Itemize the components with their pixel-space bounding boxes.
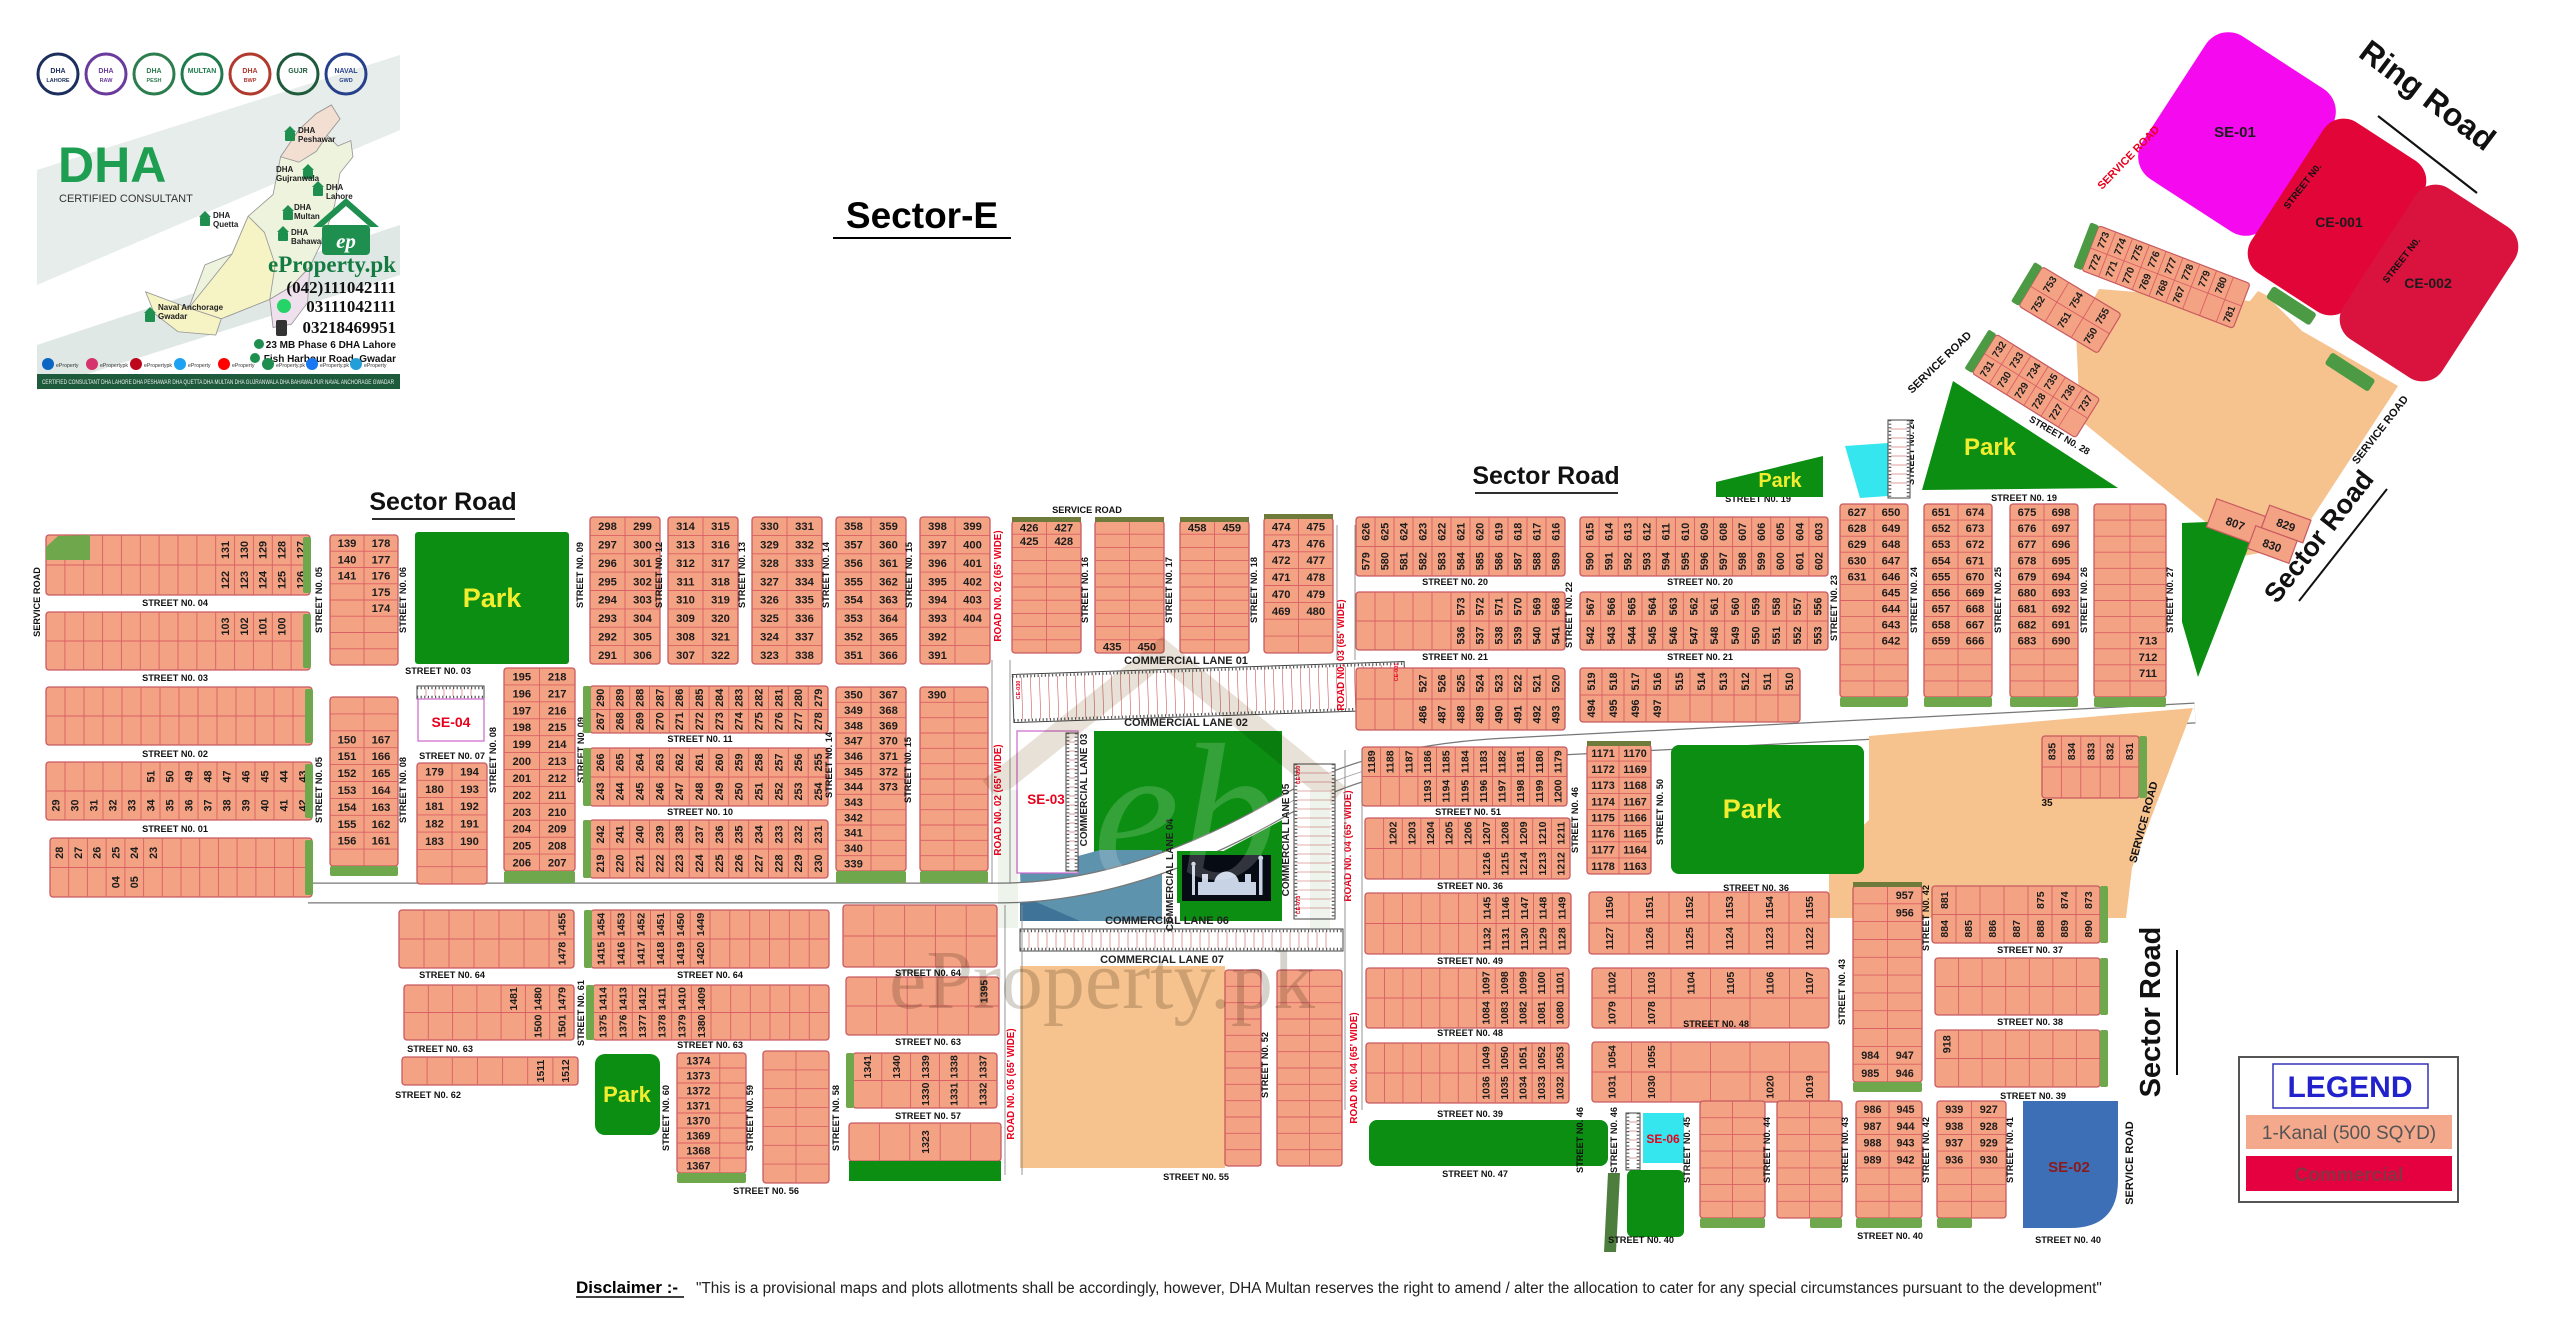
svg-text:224: 224	[694, 854, 706, 872]
svg-text:STREET N0. 58: STREET N0. 58	[831, 1085, 841, 1151]
svg-text:(042)111042111: (042)111042111	[286, 278, 396, 297]
svg-text:493: 493	[1550, 705, 1562, 723]
svg-text:225: 225	[714, 854, 726, 872]
svg-text:603: 603	[1813, 523, 1825, 541]
svg-text:834: 834	[2066, 743, 2078, 761]
svg-text:478: 478	[1306, 572, 1325, 584]
svg-text:190: 190	[460, 836, 479, 848]
svg-text:SE-06: SE-06	[1646, 1132, 1680, 1146]
svg-text:1183: 1183	[1478, 750, 1490, 773]
svg-text:475: 475	[1306, 522, 1325, 534]
svg-text:524: 524	[1474, 674, 1486, 692]
svg-text:942: 942	[1896, 1154, 1914, 1166]
svg-text:STREET N0. 03: STREET N0. 03	[142, 673, 208, 683]
svg-text:1203: 1203	[1406, 821, 1418, 845]
svg-text:130: 130	[239, 541, 251, 559]
svg-text:261: 261	[694, 753, 706, 771]
svg-text:180: 180	[425, 784, 444, 796]
svg-text:835: 835	[2047, 743, 2059, 761]
svg-text:928: 928	[1980, 1121, 1998, 1133]
svg-text:236: 236	[714, 825, 726, 843]
svg-text:STREET N0. 56: STREET N0. 56	[733, 1186, 799, 1196]
svg-text:1378: 1378	[657, 1014, 669, 1038]
svg-text:229: 229	[793, 854, 805, 872]
svg-text:200: 200	[512, 756, 531, 768]
svg-text:245: 245	[635, 782, 647, 800]
svg-text:1170: 1170	[1623, 748, 1646, 760]
svg-text:590: 590	[1584, 552, 1596, 570]
svg-text:ROAD N0. 05 (65' WIDE): ROAD N0. 05 (65' WIDE)	[1006, 1028, 1017, 1139]
svg-text:1166: 1166	[1623, 813, 1646, 825]
svg-text:STREET N0. 13: STREET N0. 13	[737, 542, 747, 608]
svg-text:Quetta: Quetta	[213, 220, 239, 229]
svg-text:STREET N0. 16: STREET N0. 16	[1080, 557, 1090, 623]
svg-text:201: 201	[512, 773, 531, 785]
svg-text:938: 938	[1945, 1121, 1963, 1133]
svg-text:STREET N0. 40: STREET N0. 40	[1857, 1231, 1923, 1241]
svg-text:STREET N0. 02: STREET N0. 02	[142, 749, 208, 759]
svg-text:306: 306	[633, 650, 652, 662]
svg-text:612: 612	[1642, 523, 1654, 541]
svg-text:1172: 1172	[1591, 764, 1614, 776]
svg-text:888: 888	[2035, 920, 2047, 938]
svg-text:1145: 1145	[1482, 897, 1494, 920]
svg-text:CE-002: CE-002	[2404, 275, 2452, 291]
svg-text:257: 257	[773, 753, 785, 771]
svg-text:DHA: DHA	[98, 68, 113, 75]
svg-text:1208: 1208	[1500, 821, 1512, 845]
svg-text:1479: 1479	[557, 987, 569, 1011]
svg-text:526: 526	[1436, 674, 1448, 692]
svg-text:537: 537	[1474, 626, 1486, 644]
svg-text:326: 326	[760, 595, 779, 607]
svg-text:231: 231	[813, 825, 825, 843]
svg-text:176: 176	[372, 571, 391, 583]
svg-text:DHA: DHA	[326, 183, 344, 192]
svg-text:03111042111: 03111042111	[306, 297, 396, 316]
svg-text:259: 259	[734, 753, 746, 771]
svg-text:STREET N0. 09: STREET N0. 09	[575, 542, 585, 608]
svg-text:1213: 1213	[1537, 852, 1549, 876]
svg-text:139: 139	[338, 538, 357, 550]
svg-text:1034: 1034	[1518, 1076, 1530, 1100]
svg-text:1186: 1186	[1422, 750, 1434, 773]
svg-text:565: 565	[1627, 597, 1639, 615]
svg-text:599: 599	[1756, 552, 1768, 570]
svg-text:342: 342	[844, 812, 863, 824]
svg-text:400: 400	[963, 540, 982, 552]
svg-text:1130: 1130	[1519, 927, 1531, 950]
svg-text:Sector Road: Sector Road	[1472, 462, 1619, 490]
svg-text:122: 122	[220, 571, 232, 589]
svg-text:35: 35	[164, 799, 176, 811]
svg-text:1175: 1175	[1591, 813, 1614, 825]
svg-text:STREET N0. 39: STREET N0. 39	[1437, 1109, 1503, 1119]
svg-text:289: 289	[615, 689, 627, 707]
svg-text:945: 945	[1896, 1104, 1914, 1116]
svg-text:270: 270	[654, 712, 666, 730]
svg-text:302: 302	[633, 576, 652, 588]
svg-text:328: 328	[760, 558, 779, 570]
svg-text:SERVICE ROAD: SERVICE ROAD	[32, 567, 42, 637]
svg-text:STREET N0. 55: STREET N0. 55	[1163, 1172, 1229, 1182]
svg-text:30: 30	[69, 799, 81, 811]
svg-text:258: 258	[754, 753, 766, 771]
svg-text:681: 681	[2018, 604, 2037, 616]
svg-text:COMMERCIAL LANE 03: COMMERCIAL LANE 03	[1079, 733, 1090, 846]
svg-text:885: 885	[1963, 920, 1975, 938]
svg-text:156: 156	[338, 836, 357, 848]
svg-text:296: 296	[598, 558, 617, 570]
svg-text:1168: 1168	[1623, 780, 1646, 792]
svg-text:339: 339	[844, 858, 863, 870]
svg-text:STREET N0. 45: STREET N0. 45	[1682, 1117, 1692, 1183]
svg-text:358: 358	[844, 521, 863, 533]
svg-text:205: 205	[512, 841, 531, 853]
svg-text:696: 696	[2052, 539, 2071, 551]
svg-text:1212: 1212	[1556, 852, 1568, 876]
svg-text:STREET N0. 47: STREET N0. 47	[1442, 1169, 1508, 1179]
svg-text:571: 571	[1493, 597, 1505, 615]
svg-text:03218469951: 03218469951	[303, 318, 397, 337]
svg-text:STREET N0. 08: STREET N0. 08	[398, 757, 408, 823]
svg-text:1187: 1187	[1403, 750, 1415, 773]
svg-text:Park: Park	[1758, 470, 1802, 492]
svg-text:1081: 1081	[1536, 1001, 1548, 1025]
svg-text:320: 320	[711, 613, 730, 625]
svg-text:151: 151	[338, 751, 357, 763]
svg-text:STREET N0. 64: STREET N0. 64	[419, 970, 486, 980]
svg-text:1323: 1323	[920, 1130, 932, 1154]
svg-text:227: 227	[754, 854, 766, 872]
svg-text:711: 711	[2139, 668, 2157, 680]
svg-text:1375: 1375	[598, 1014, 610, 1038]
svg-text:35: 35	[2041, 798, 2053, 809]
svg-text:STREET N0. 11: STREET N0. 11	[667, 734, 732, 744]
svg-text:DHA: DHA	[213, 211, 231, 220]
svg-text:STREET N0. 57: STREET N0. 57	[895, 1111, 961, 1121]
svg-text:204: 204	[512, 824, 531, 836]
svg-text:1199: 1199	[1534, 780, 1546, 803]
svg-text:680: 680	[2018, 588, 2037, 600]
svg-text:249: 249	[714, 782, 726, 800]
svg-text:Naval Anchorage: Naval Anchorage	[158, 303, 224, 312]
svg-text:STREET N0. 48: STREET N0. 48	[1683, 1019, 1749, 1029]
svg-text:357: 357	[844, 540, 863, 552]
svg-text:334: 334	[795, 576, 814, 588]
svg-text:23 MB Phase 6 DHA Lahore: 23 MB Phase 6 DHA Lahore	[266, 340, 397, 351]
svg-text:435: 435	[1103, 641, 1122, 653]
svg-text:150: 150	[338, 734, 357, 746]
svg-text:487: 487	[1436, 705, 1448, 723]
svg-text:161: 161	[372, 836, 391, 848]
svg-text:207: 207	[548, 858, 567, 870]
svg-text:193: 193	[460, 784, 479, 796]
svg-text:881: 881	[1939, 891, 1951, 909]
svg-text:STREET N0. 63: STREET N0. 63	[407, 1044, 473, 1054]
svg-text:495: 495	[1608, 699, 1620, 717]
svg-text:697: 697	[2052, 523, 2071, 535]
svg-text:548: 548	[1709, 626, 1721, 644]
svg-text:331: 331	[795, 521, 814, 533]
svg-text:STREET N0. 49: STREET N0. 49	[1437, 956, 1503, 966]
svg-text:873: 873	[2083, 891, 2095, 909]
svg-text:CE-001: CE-001	[2315, 214, 2363, 230]
svg-text:349: 349	[844, 705, 863, 717]
svg-text:208: 208	[548, 841, 567, 853]
svg-text:1369: 1369	[686, 1130, 710, 1142]
svg-text:369: 369	[879, 720, 898, 732]
svg-text:163: 163	[372, 802, 391, 814]
svg-text:313: 313	[676, 540, 695, 552]
svg-text:579: 579	[1360, 552, 1372, 570]
svg-text:1054: 1054	[1607, 1045, 1619, 1069]
svg-text:316: 316	[711, 540, 730, 552]
svg-text:SE-01: SE-01	[2214, 124, 2256, 141]
svg-text:642: 642	[1882, 636, 1901, 648]
svg-text:1084: 1084	[1481, 1001, 1493, 1025]
svg-text:329: 329	[760, 540, 779, 552]
svg-text:643: 643	[1882, 620, 1901, 632]
svg-text:301: 301	[633, 558, 652, 570]
svg-text:470: 470	[1272, 589, 1291, 601]
svg-text:209: 209	[548, 824, 567, 836]
svg-text:24: 24	[129, 847, 141, 859]
svg-text:STREET N0. 07: STREET N0. 07	[419, 751, 485, 761]
svg-text:253: 253	[793, 782, 805, 800]
svg-text:536: 536	[1455, 626, 1467, 644]
svg-text:511: 511	[1762, 673, 1774, 690]
svg-text:STREET N0. 63: STREET N0. 63	[677, 1040, 743, 1050]
svg-text:183: 183	[425, 836, 444, 848]
svg-text:271: 271	[674, 712, 686, 730]
svg-text:Park: Park	[603, 1082, 651, 1107]
svg-text:27: 27	[73, 847, 85, 859]
svg-text:314: 314	[676, 521, 695, 533]
svg-text:198: 198	[512, 722, 531, 734]
svg-text:STREET N0. 64: STREET N0. 64	[677, 970, 744, 980]
svg-text:297: 297	[598, 540, 617, 552]
svg-text:DHA: DHA	[294, 203, 312, 212]
svg-text:182: 182	[425, 819, 444, 831]
svg-text:230: 230	[813, 854, 825, 872]
svg-text:181: 181	[425, 801, 444, 813]
svg-text:1198: 1198	[1515, 780, 1527, 803]
svg-text:1174: 1174	[1591, 796, 1614, 808]
svg-text:1337: 1337	[977, 1055, 989, 1079]
svg-text:1097: 1097	[1481, 971, 1493, 995]
svg-text:628: 628	[1848, 523, 1867, 535]
svg-text:1481: 1481	[508, 987, 520, 1011]
svg-text:223: 223	[674, 854, 686, 872]
svg-text:1176: 1176	[1591, 829, 1614, 841]
svg-text:619: 619	[1493, 523, 1505, 541]
svg-text:238: 238	[674, 825, 686, 843]
svg-text:327: 327	[760, 576, 779, 588]
svg-text:352: 352	[844, 632, 863, 644]
svg-text:1152: 1152	[1684, 896, 1696, 919]
svg-text:517: 517	[1630, 672, 1642, 690]
svg-text:242: 242	[595, 825, 607, 843]
svg-text:322: 322	[711, 650, 730, 662]
svg-text:STREET N0. 21: STREET N0. 21	[1667, 652, 1733, 662]
svg-text:365: 365	[879, 632, 898, 644]
svg-text:STREET N0. 44: STREET N0. 44	[1762, 1116, 1772, 1183]
svg-text:LAHORE: LAHORE	[46, 78, 70, 84]
svg-text:557: 557	[1792, 597, 1804, 615]
svg-text:154: 154	[338, 802, 357, 814]
svg-text:26: 26	[92, 847, 104, 859]
svg-text:1124: 1124	[1724, 927, 1736, 950]
svg-text:348: 348	[844, 720, 863, 732]
svg-text:712: 712	[2139, 652, 2158, 664]
svg-text:164: 164	[372, 785, 391, 797]
svg-text:646: 646	[1882, 571, 1901, 583]
svg-text:606: 606	[1756, 523, 1768, 541]
svg-text:DHA: DHA	[276, 165, 294, 174]
svg-text:162: 162	[372, 819, 391, 831]
svg-text:459: 459	[1222, 523, 1241, 535]
svg-text:STREET N0. 38: STREET N0. 38	[1997, 1017, 2063, 1027]
svg-text:STREET N0. 03: STREET N0. 03	[405, 666, 471, 676]
svg-text:346: 346	[844, 751, 863, 763]
svg-text:178: 178	[372, 538, 391, 550]
svg-text:325: 325	[760, 613, 779, 625]
svg-text:1126: 1126	[1644, 927, 1656, 950]
svg-text:DHA: DHA	[242, 68, 257, 75]
svg-text:305: 305	[633, 632, 652, 644]
svg-text:362: 362	[879, 576, 898, 588]
svg-text:1053: 1053	[1555, 1046, 1567, 1070]
svg-text:STREET N0. 63: STREET N0. 63	[895, 1037, 961, 1047]
svg-text:1099: 1099	[1518, 971, 1530, 995]
svg-text:309: 309	[676, 613, 695, 625]
svg-text:987: 987	[1863, 1121, 1881, 1133]
svg-text:292: 292	[598, 632, 617, 644]
svg-text:645: 645	[1882, 588, 1901, 600]
svg-text:351: 351	[844, 650, 863, 662]
svg-text:650: 650	[1882, 507, 1901, 519]
svg-text:282: 282	[754, 689, 766, 707]
svg-text:246: 246	[654, 782, 666, 800]
svg-text:479: 479	[1306, 589, 1325, 601]
svg-text:458: 458	[1188, 523, 1207, 535]
svg-text:1209: 1209	[1518, 821, 1530, 845]
svg-text:425: 425	[1020, 536, 1039, 548]
svg-text:616: 616	[1550, 523, 1562, 541]
svg-text:985: 985	[1861, 1068, 1879, 1080]
svg-text:601: 601	[1794, 552, 1806, 570]
svg-text:1368: 1368	[686, 1145, 710, 1157]
svg-text:668: 668	[1966, 604, 1985, 616]
svg-text:GUJR: GUJR	[288, 68, 307, 75]
svg-text:1154: 1154	[1764, 896, 1776, 919]
svg-text:943: 943	[1896, 1138, 1914, 1150]
svg-text:ePropertypk: ePropertypk	[144, 363, 172, 369]
svg-text:1189: 1189	[1366, 750, 1378, 773]
svg-text:492: 492	[1531, 705, 1543, 723]
svg-text:372: 372	[879, 766, 898, 778]
svg-text:476: 476	[1306, 538, 1325, 550]
svg-text:308: 308	[676, 632, 695, 644]
svg-text:266: 266	[595, 753, 607, 771]
svg-text:"This is a provisional maps an: "This is a provisional maps and plots al…	[696, 1280, 2102, 1297]
svg-text:602: 602	[1813, 552, 1825, 570]
svg-text:1052: 1052	[1536, 1046, 1548, 1070]
svg-text:395: 395	[928, 576, 947, 588]
svg-text:1200: 1200	[1553, 779, 1565, 803]
svg-text:600: 600	[1775, 552, 1787, 570]
svg-text:670: 670	[1966, 571, 1985, 583]
svg-text:233: 233	[773, 825, 785, 843]
svg-text:STREET N0. 24: STREET N0. 24	[1909, 566, 1919, 633]
svg-text:657: 657	[1932, 604, 1951, 616]
svg-text:655: 655	[1932, 571, 1951, 583]
svg-text:1128: 1128	[1556, 927, 1568, 950]
svg-text:1380: 1380	[696, 1014, 708, 1038]
svg-text:654: 654	[1932, 555, 1951, 567]
svg-text:1030: 1030	[1646, 1075, 1658, 1099]
svg-text:587: 587	[1512, 552, 1524, 570]
svg-text:STREET N0. 52: STREET N0. 52	[1260, 1032, 1270, 1098]
svg-text:1415: 1415	[596, 942, 608, 966]
svg-text:1149: 1149	[1556, 897, 1568, 920]
svg-text:221: 221	[635, 854, 647, 872]
svg-text:240: 240	[635, 825, 647, 843]
svg-text:550: 550	[1751, 626, 1763, 644]
svg-text:542: 542	[1585, 626, 1597, 644]
svg-text:1032: 1032	[1555, 1076, 1567, 1100]
svg-text:44: 44	[278, 770, 290, 782]
svg-text:SERVICE ROAD: SERVICE ROAD	[2124, 1121, 2136, 1205]
svg-text:1103: 1103	[1646, 971, 1658, 994]
svg-text:1020: 1020	[1765, 1075, 1777, 1099]
svg-text:390: 390	[928, 690, 947, 702]
svg-text:STREET N0. 12: STREET N0. 12	[654, 542, 664, 608]
svg-text:1167: 1167	[1623, 796, 1646, 808]
svg-text:STREET N0. 14: STREET N0. 14	[824, 731, 834, 798]
svg-text:543: 543	[1606, 626, 1618, 644]
svg-text:989: 989	[1863, 1154, 1881, 1166]
svg-text:218: 218	[548, 672, 567, 684]
svg-text:STREET N0. 39: STREET N0. 39	[2000, 1091, 2066, 1101]
svg-text:622: 622	[1436, 523, 1448, 541]
svg-text:211: 211	[548, 790, 566, 802]
svg-text:591: 591	[1604, 552, 1616, 570]
svg-text:1105: 1105	[1725, 971, 1737, 994]
svg-text:294: 294	[598, 595, 617, 607]
svg-text:886: 886	[1987, 920, 1999, 938]
svg-text:SE-04: SE-04	[432, 714, 471, 730]
svg-text:1412: 1412	[637, 987, 649, 1011]
svg-text:Park: Park	[463, 583, 523, 613]
svg-text:STREET N0. 43: STREET N0. 43	[1837, 959, 1847, 1025]
svg-text:1197: 1197	[1497, 780, 1509, 803]
svg-text:1340: 1340	[891, 1055, 903, 1079]
svg-text:1100: 1100	[1536, 971, 1548, 994]
svg-text:217: 217	[548, 688, 567, 700]
svg-text:1107: 1107	[1804, 971, 1816, 994]
svg-text:287: 287	[654, 689, 666, 707]
svg-text:1036: 1036	[1481, 1076, 1493, 1100]
svg-text:312: 312	[676, 558, 695, 570]
svg-text:1019: 1019	[1804, 1075, 1816, 1099]
svg-text:166: 166	[372, 751, 391, 763]
svg-text:1132: 1132	[1482, 927, 1494, 950]
svg-text:367: 367	[879, 690, 898, 702]
svg-text:265: 265	[615, 753, 627, 771]
svg-text:48: 48	[202, 770, 214, 782]
